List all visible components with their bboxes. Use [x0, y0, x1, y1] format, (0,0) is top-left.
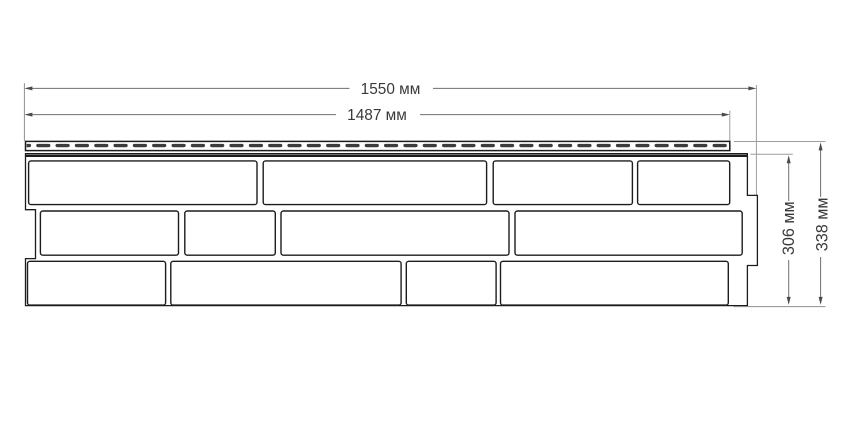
svg-text:1550 мм: 1550 мм: [361, 81, 421, 98]
svg-text:338 мм: 338 мм: [813, 198, 831, 252]
svg-text:306 мм: 306 мм: [780, 201, 798, 255]
svg-text:1487 мм: 1487 мм: [347, 107, 407, 124]
